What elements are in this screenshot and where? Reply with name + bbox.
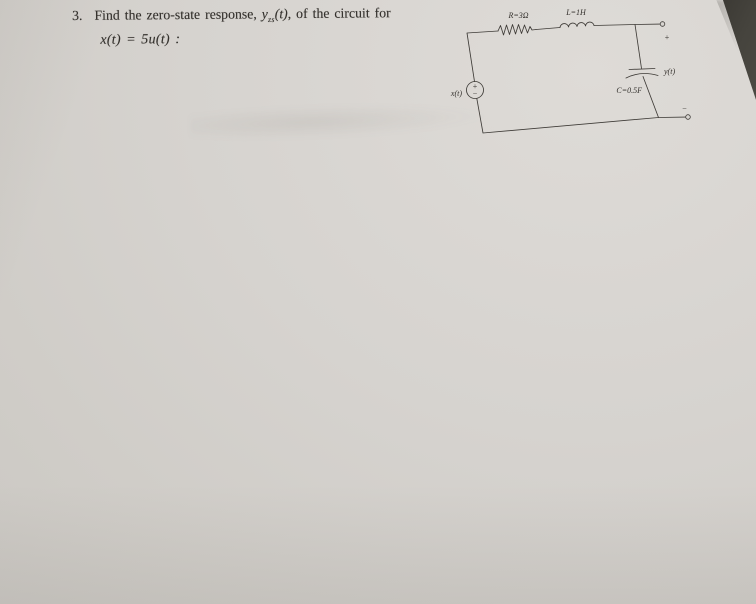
resistor-symbol [498, 25, 536, 36]
wire-left-top [467, 31, 498, 82]
problem-number: 3. [72, 6, 83, 25]
resistor-label: R=3Ω [507, 11, 528, 20]
paper-sheet: 3.Find the zero-state response, yzs(t), … [0, 0, 756, 604]
inductor-symbol [560, 22, 594, 27]
output-plus-sign: + [665, 33, 670, 42]
wire-cap-branch [635, 25, 642, 69]
circuit-diagram: + − R=3Ω L=1H C=0.5F x(t) y(t) + − [432, 0, 722, 145]
wire-bottom [477, 98, 686, 133]
worksheet-photo: 3.Find the zero-state response, yzs(t), … [0, 0, 756, 604]
wire-top-right [594, 24, 660, 25]
source-minus-sign: − [473, 90, 478, 99]
output-label: y(t) [663, 67, 675, 76]
statement-prefix: Find the zero-state response, [94, 6, 261, 22]
capacitor-plate-bottom [626, 74, 658, 79]
wire-cap-to-bottom [643, 77, 659, 118]
capacitor-plate-top [629, 69, 655, 70]
inductor-label: L=1H [565, 8, 587, 17]
input-equation: x(t) = 5u(t) : [100, 27, 452, 49]
output-minus-sign: − [682, 104, 687, 113]
problem-statement: 3.Find the zero-state response, yzs(t), … [72, 3, 452, 50]
wire-r-to-l [536, 28, 560, 30]
problem-line-1: 3.Find the zero-state response, yzs(t), … [72, 3, 452, 31]
output-terminal-top [660, 22, 665, 27]
math-y-args: (t) [275, 6, 288, 21]
capacitor-label: C=0.5F [616, 86, 642, 95]
statement-suffix: , of the circuit for [288, 5, 391, 21]
output-terminal-bottom [686, 115, 691, 120]
source-label: x(t) [450, 89, 462, 98]
math-y-zs: yzs(t) [262, 6, 288, 21]
